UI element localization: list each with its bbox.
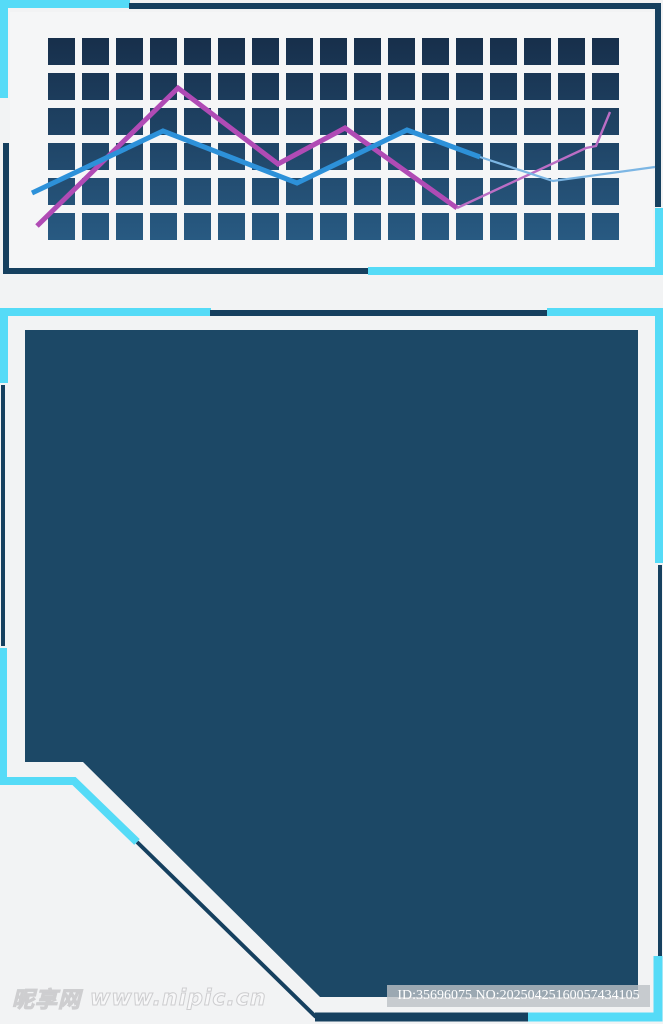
- top-frame-cyan-corner-accent: [0, 0, 130, 98]
- watermark-site-name: 昵享网: [12, 982, 81, 1014]
- chart-line-magenta: [37, 88, 457, 226]
- watermark-site-url: www.nipic.cn: [90, 986, 267, 1011]
- watermark: 昵享网 www.nipic.cn: [12, 984, 267, 1012]
- poster-canvas: 昵享网 www.nipic.cn ID:35696075 NO:20250425…: [0, 0, 663, 1024]
- bottom-frame-cyan-top-right-accent: [547, 312, 659, 563]
- top-frame-cyan-corner-accent-bottom: [368, 208, 663, 271]
- top-frame-navy-border-bottom: [6, 143, 368, 271]
- bottom-frame-cyan-bottom-left-accent: [3, 648, 137, 842]
- chart-line-blue-thin: [480, 157, 655, 181]
- image-id-badge: ID:35696075 NO:20250425160057434105: [387, 985, 650, 1007]
- chart-line-blue: [32, 130, 480, 193]
- accent-overlay: [0, 0, 663, 1024]
- chart-line-magenta-thin: [457, 112, 610, 208]
